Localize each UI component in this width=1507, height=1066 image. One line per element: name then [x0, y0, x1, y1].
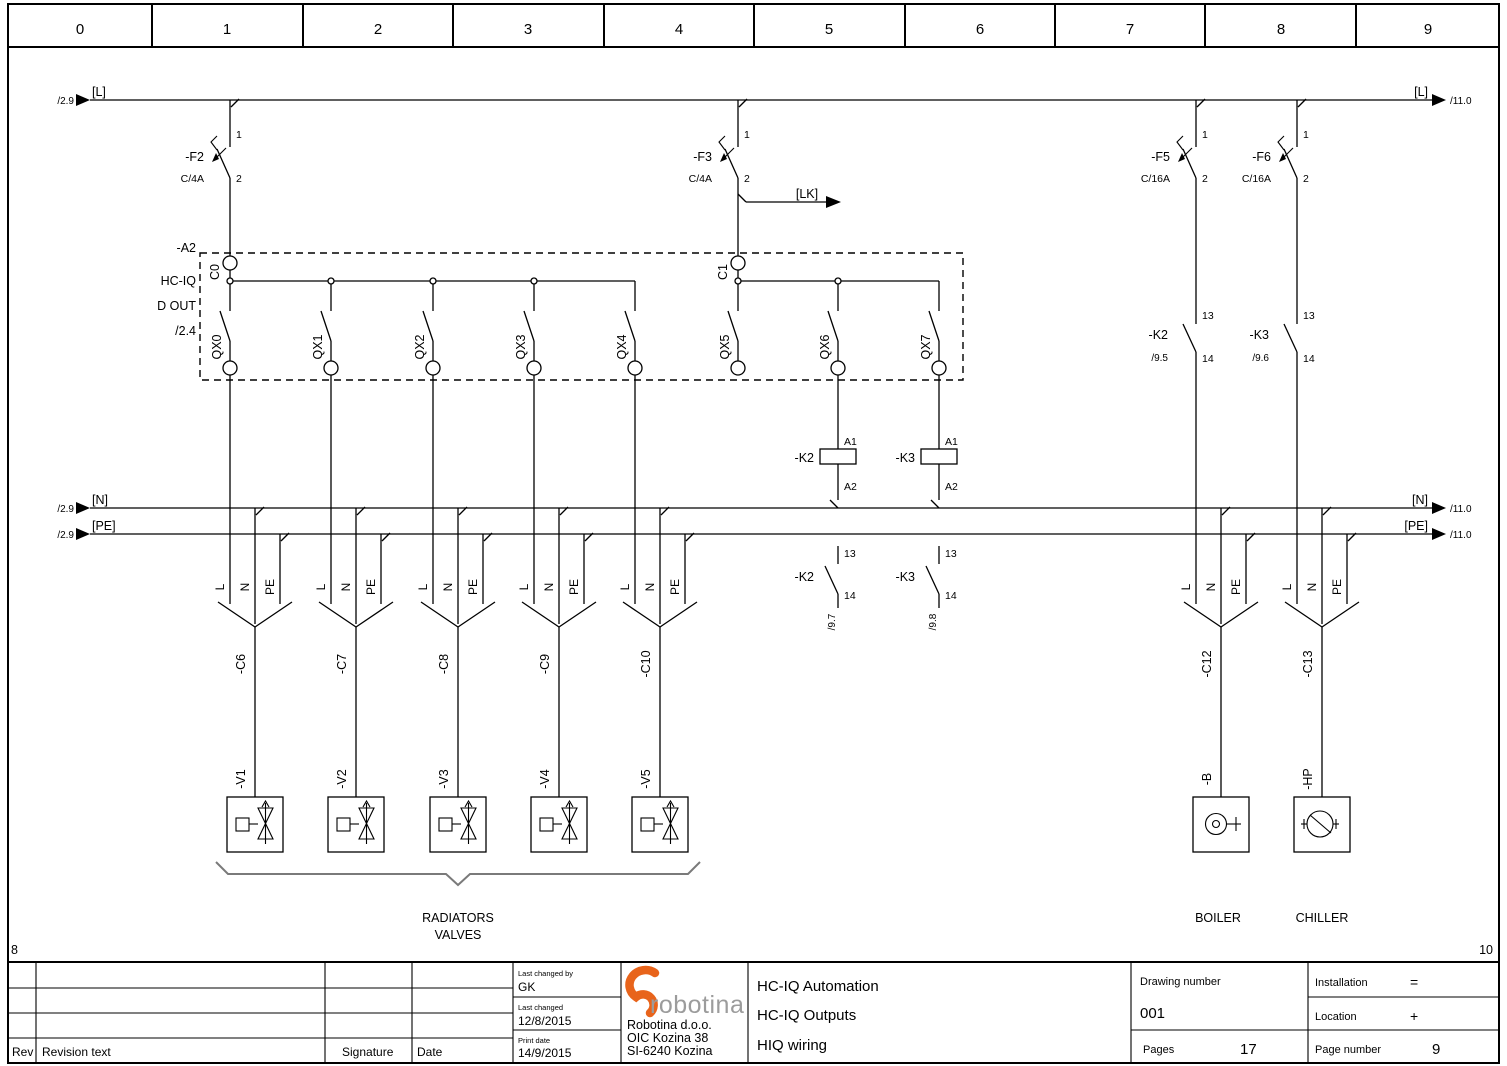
company-line2: OIC Kozina 38 [627, 1031, 708, 1045]
title-block: Rev Revision text Signature Date Last ch… [8, 962, 1499, 1063]
aux-K2-name: -K2 [795, 570, 815, 584]
pages-label: Pages [1143, 1044, 1175, 1056]
qx6-label: QX6 [818, 334, 832, 359]
revision-text-header: Revision text [42, 1045, 111, 1059]
boiler-symbol [1193, 797, 1249, 852]
location-value: + [1410, 1008, 1418, 1024]
load-B-label: -B [1200, 773, 1214, 786]
relay-contact-K2-power: 13 -K2 /9.5 14 [1149, 310, 1214, 604]
valve-V2-symbol [328, 797, 384, 852]
cable-C8-core-L: L [416, 583, 430, 590]
qx3-label: QX3 [514, 334, 528, 359]
cable-C9: L N PE -C9 -V4 [517, 508, 596, 797]
breaker-F5: 1 -F5 C/16A 2 [1141, 100, 1208, 324]
cable-C10-label: -C10 [639, 650, 653, 677]
drawing-number-label: Drawing number [1140, 976, 1221, 988]
qx7-label: QX7 [919, 334, 933, 359]
breaker-F3: 1 -F3 C/4A 2 [LK] [689, 100, 841, 256]
last-changed-by-value: GK [518, 980, 535, 994]
valve-V1-symbol [227, 797, 283, 852]
breaker-F5-name: -F5 [1151, 150, 1170, 164]
last-changed-label: Last changed [518, 1003, 563, 1012]
breaker-F6: 1 -F6 C/16A 2 [1242, 100, 1309, 324]
last-changed-by-label: Last changed by [518, 969, 573, 978]
contact-K3-name: -K3 [1250, 328, 1270, 342]
chiller-symbol [1294, 797, 1350, 852]
breaker-F6-rating: C/16A [1242, 173, 1271, 185]
breaker-F3-name: -F3 [693, 150, 712, 164]
load-V3-label: -V3 [437, 769, 451, 789]
breaker-F6-pin2: 2 [1303, 173, 1309, 185]
date-header: Date [417, 1045, 443, 1059]
caption-radiators-1: RADIATORS [422, 911, 494, 925]
coil-K2-name: -K2 [795, 451, 815, 465]
breaker-F2-pin1: 1 [236, 129, 242, 141]
aux-K3-t13: 13 [945, 548, 957, 560]
module-function: D OUT [157, 299, 196, 313]
ruler-0: 0 [76, 21, 84, 38]
module-name: -A2 [177, 241, 197, 255]
breaker-F6-pin1: 1 [1303, 129, 1309, 141]
load-V4-label: -V4 [538, 769, 552, 789]
breaker-F3-pin1: 1 [744, 129, 750, 141]
relay-contact-K2-aux: 13 -K2 14 /9.7 [795, 546, 856, 630]
cable-C12-core-L: L [1179, 583, 1193, 590]
company-line1: Robotina d.o.o. [627, 1018, 712, 1032]
load-HP-label: -HP [1301, 768, 1315, 790]
cable-C9-label: -C9 [538, 654, 552, 674]
breaker-F3-pin2: 2 [744, 173, 750, 185]
contact-K3-t13: 13 [1303, 310, 1315, 322]
ruler-5: 5 [825, 21, 833, 38]
cable-C9-core-PE: PE [567, 579, 581, 595]
cable-C10-core-PE: PE [668, 579, 682, 595]
aux-K2-t14: 14 [844, 590, 856, 602]
aux-K2-t13: 13 [844, 548, 856, 560]
module-common-C0: C0 [208, 264, 222, 280]
cable-C7-core-N: N [339, 583, 353, 592]
cable-C13-core-PE: PE [1330, 579, 1344, 595]
cable-C6-core-PE: PE [263, 579, 277, 595]
breaker-F5-pin1: 1 [1202, 129, 1208, 141]
last-changed-value: 12/8/2015 [518, 1014, 572, 1028]
module-output-QX3: QX3 [514, 284, 541, 375]
load-V5-label: -V5 [639, 769, 653, 789]
rail-PE-left-ref: /2.9 [57, 530, 74, 541]
cable-C6: L N PE -C6 -V1 [213, 508, 292, 797]
cable-C13-label: -C13 [1301, 650, 1315, 677]
relay-contact-K3-aux: 13 -K3 14 /9.8 [896, 546, 957, 630]
pages-value: 17 [1240, 1041, 1257, 1058]
caption-radiators-2: VALVES [435, 928, 482, 942]
branch-LK-label: [LK] [796, 187, 818, 201]
relay-coil-K2: A1 -K2 A2 [795, 436, 857, 500]
aux-K3-name: -K3 [896, 570, 916, 584]
cable-C10-core-N: N [643, 583, 657, 592]
cable-C10-core-L: L [618, 583, 632, 590]
ruler-2: 2 [374, 21, 382, 38]
rail-N-right-ref: /11.0 [1450, 504, 1472, 515]
caption-boiler: BOILER [1195, 911, 1241, 925]
frame-marker-left: 8 [11, 943, 18, 957]
cable-C9-core-L: L [517, 583, 531, 590]
module-output-QX6: QX6 [818, 284, 845, 375]
cable-C10: L N PE -C10 -V5 [618, 508, 697, 797]
module-ref: /2.4 [175, 324, 196, 338]
print-date-value: 14/9/2015 [518, 1046, 572, 1060]
cable-C7-label: -C7 [335, 654, 349, 674]
ruler-9: 9 [1424, 21, 1432, 38]
company-logo: robotina [629, 970, 744, 1019]
valve-V5-symbol [632, 797, 688, 852]
rev-header: Rev [12, 1045, 33, 1059]
rail-PE-right-ref: /11.0 [1450, 530, 1472, 541]
cable-C8-core-PE: PE [466, 579, 480, 595]
rail-N-left-ref: /2.9 [57, 504, 74, 515]
qx0-label: QX0 [210, 334, 224, 359]
cable-C7-core-L: L [314, 583, 328, 590]
rail-L: /2.9 [L] [L] /11.0 [57, 85, 1472, 107]
cable-C13-core-L: L [1280, 583, 1294, 590]
module-output-QX7: QX7 [919, 281, 946, 375]
cable-C13-core-N: N [1305, 583, 1319, 592]
valve-V4-symbol [531, 797, 587, 852]
coil-K2-a2: A2 [844, 481, 857, 493]
module-output-QX0: QX0 [210, 284, 237, 375]
rail-PE-left-label: [PE] [92, 519, 116, 533]
load-V2-label: -V2 [335, 769, 349, 789]
breaker-F5-rating: C/16A [1141, 173, 1170, 185]
qx4-label: QX4 [615, 334, 629, 359]
caption-chiller: CHILLER [1296, 911, 1349, 925]
cable-C6-label: -C6 [234, 654, 248, 674]
cable-C12: L N PE -C12 -B [1179, 508, 1258, 797]
module-common-C1: C1 [716, 264, 730, 280]
page-number-label: Page number [1315, 1044, 1381, 1056]
cable-C12-label: -C12 [1200, 650, 1214, 677]
ruler-3: 3 [524, 21, 532, 38]
module-output-QX2: QX2 [413, 284, 440, 375]
page-frame: 0 1 2 3 4 5 6 7 8 9 8 10 [8, 4, 1499, 962]
rail-N: /2.9 [N] [N] /11.0 [57, 493, 1472, 515]
contact-K2-name: -K2 [1149, 328, 1169, 342]
ruler-7: 7 [1126, 21, 1134, 38]
valve-V3-symbol [430, 797, 486, 852]
captions: RADIATORS VALVES BOILER CHILLER [216, 862, 1348, 942]
coil-K3-a1: A1 [945, 436, 958, 448]
ruler-1: 1 [223, 21, 231, 38]
project-title-1: HC-IQ Automation [757, 978, 879, 995]
cable-C6-core-L: L [213, 583, 227, 590]
location-label: Location [1315, 1011, 1357, 1023]
ruler-4: 4 [675, 21, 683, 38]
module-output-QX1: QX1 [311, 284, 338, 375]
project-title-2: HC-IQ Outputs [757, 1007, 856, 1024]
ruler-8: 8 [1277, 21, 1285, 38]
frame-marker-right: 10 [1479, 943, 1493, 957]
relay-contact-K3-power: 13 -K3 /9.6 14 [1250, 310, 1315, 604]
breaker-F2-name: -F2 [185, 150, 204, 164]
cable-C12-core-N: N [1204, 583, 1218, 592]
company-line3: SI-6240 Kozina [627, 1044, 713, 1058]
load-V1-label: -V1 [234, 769, 248, 789]
breaker-F2-rating: C/4A [181, 173, 204, 185]
rail-L-right-ref: /11.0 [1450, 96, 1472, 107]
signature-header: Signature [342, 1045, 394, 1059]
contact-K2-ref: /9.5 [1151, 353, 1168, 364]
cable-C8: L N PE -C8 -V3 [416, 508, 495, 797]
coil-K3-name: -K3 [896, 451, 916, 465]
contact-K3-ref: /9.6 [1252, 353, 1269, 364]
relay-coil-K3: A1 -K3 A2 [896, 436, 958, 500]
qx2-label: QX2 [413, 334, 427, 359]
breaker-F2: 1 -F2 C/4A 2 [181, 100, 242, 256]
project-title-3: HIQ wiring [757, 1037, 827, 1054]
cable-C6-core-N: N [238, 583, 252, 592]
rail-L-left-label: [L] [92, 85, 106, 99]
rail-L-right-label: [L] [1414, 85, 1428, 99]
qx1-label: QX1 [311, 334, 325, 359]
cable-C13: L N PE -C13 -HP [1280, 508, 1359, 797]
schematic-page: 0 1 2 3 4 5 6 7 8 9 8 10 /2.9 [L] [L] /1… [0, 0, 1507, 1066]
cable-C7: L N PE -C7 -V2 [314, 508, 393, 797]
rail-PE: /2.9 [PE] [PE] /11.0 [57, 519, 1472, 541]
aux-K2-ref: /9.7 [827, 613, 838, 630]
qx5-label: QX5 [718, 334, 732, 359]
installation-label: Installation [1315, 977, 1368, 989]
rail-L-left-ref: /2.9 [57, 96, 74, 107]
print-date-label: Print date [518, 1036, 550, 1045]
page-number-value: 9 [1432, 1041, 1440, 1058]
cable-C9-core-N: N [542, 583, 556, 592]
breaker-F6-name: -F6 [1252, 150, 1271, 164]
drawing-number-value: 001 [1140, 1005, 1165, 1022]
aux-K3-t14: 14 [945, 590, 957, 602]
cable-C8-label: -C8 [437, 654, 451, 674]
module-output-QX5: QX5 [718, 284, 745, 375]
contact-K2-t14: 14 [1202, 353, 1214, 365]
cable-C12-core-PE: PE [1229, 579, 1243, 595]
ruler-6: 6 [976, 21, 984, 38]
module-output-QX4: QX4 [615, 281, 642, 375]
logo-wordmark: robotina [650, 991, 744, 1019]
contact-K2-t13: 13 [1202, 310, 1214, 322]
breaker-F3-rating: C/4A [689, 173, 712, 185]
cable-C8-core-N: N [441, 583, 455, 592]
rail-N-left-label: [N] [92, 493, 108, 507]
coil-K3-a2: A2 [945, 481, 958, 493]
rail-PE-right-label: [PE] [1404, 519, 1428, 533]
aux-K3-ref: /9.8 [928, 613, 939, 630]
coil-K2-a1: A1 [844, 436, 857, 448]
rail-N-right-label: [N] [1412, 493, 1428, 507]
breaker-F2-pin2: 2 [236, 173, 242, 185]
breaker-F5-pin2: 2 [1202, 173, 1208, 185]
contact-K3-t14: 14 [1303, 353, 1315, 365]
installation-value: = [1410, 974, 1418, 990]
plc-module-A2: -A2 HC-IQ D OUT /2.4 C0 C1 QX0 QX1 QX2 [157, 241, 963, 380]
cable-C7-core-PE: PE [364, 579, 378, 595]
module-device: HC-IQ [161, 274, 197, 288]
